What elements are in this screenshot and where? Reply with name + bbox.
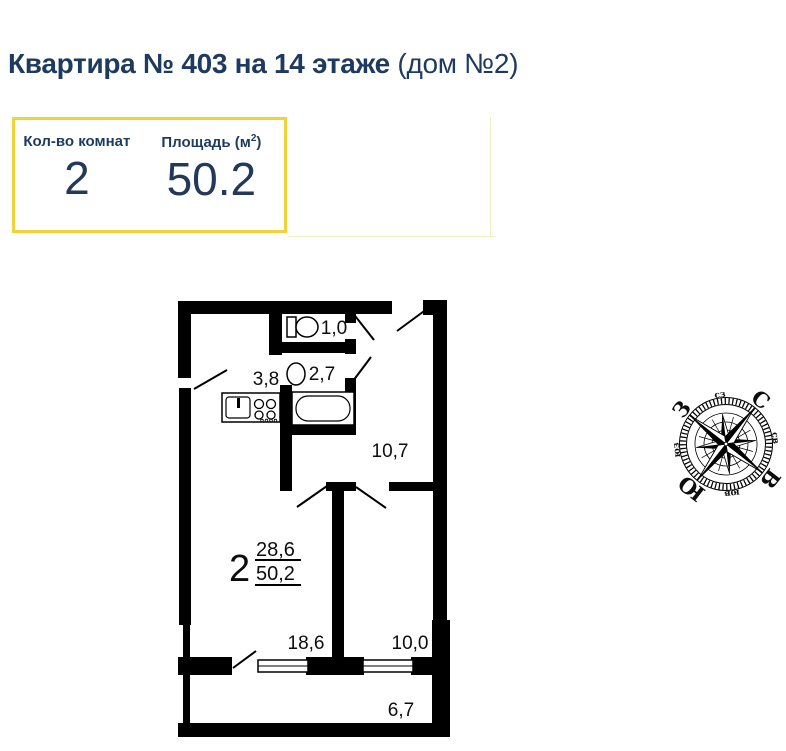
- room-area-balcony: 6,7: [388, 700, 414, 721]
- room-area-corridor: 3,8: [253, 369, 279, 390]
- summary-rooms: 2: [229, 548, 250, 590]
- rooms-header: Кол-во комнат: [15, 133, 139, 150]
- compass-label-northwest: сз: [714, 390, 727, 401]
- compass-label-north: С: [747, 384, 776, 414]
- page-title-main: Квартира № 403 на 14 этаже: [8, 48, 390, 79]
- compass-rotated-group: С В Ю З св юв юз сз: [656, 378, 786, 510]
- faint-vertical-rule: [490, 117, 491, 236]
- room-area-bathroom: 2,7: [309, 364, 335, 385]
- faint-horizontal-rule: [288, 236, 496, 237]
- washbasin-icon: [287, 363, 305, 385]
- apartment-info-box: Кол-во комнат 2 Площадь (м2) 50.2: [12, 117, 287, 233]
- apartment-summary-label: 2 28,6 50,2: [229, 539, 301, 590]
- summary-living-area: 28,6: [256, 539, 295, 561]
- compass-label-west: З: [667, 396, 696, 423]
- apartment-page: Квартира № 403 на 14 этаже (дом №2) Кол-…: [0, 0, 786, 751]
- page-title: Квартира № 403 на 14 этаже (дом №2): [8, 48, 518, 80]
- area-column: Площадь (м2) 50.2: [139, 120, 284, 230]
- kitchen-sink-stove-icon: [222, 393, 280, 422]
- compass-label-southeast: юв: [724, 487, 741, 499]
- compass-label-southwest: юз: [671, 442, 683, 458]
- page-title-house: (дом №2): [397, 48, 518, 79]
- summary-total-area: 50,2: [256, 563, 295, 585]
- room-area-bedroom: 10,0: [392, 633, 429, 654]
- compass-label-northeast: св: [769, 432, 780, 445]
- rooms-column: Кол-во комнат 2: [15, 120, 139, 230]
- compass-label-south: Ю: [673, 470, 710, 506]
- rooms-value: 2: [15, 153, 139, 204]
- compass-label-east: В: [755, 464, 786, 493]
- area-header: Площадь (м2): [139, 133, 284, 151]
- compass-rose: С В Ю З св юв юз сз: [656, 378, 786, 510]
- area-value: 50.2: [139, 154, 284, 205]
- room-area-hall: 10,7: [372, 441, 409, 462]
- bathtub-icon: [292, 392, 354, 425]
- floor-plan: 1,0 2,7 3,8 10,7 18,6 10,0 6,7 2 28,6 50…: [170, 295, 460, 743]
- room-area-living: 18,6: [288, 633, 325, 654]
- area-header-text: Площадь (м: [161, 134, 250, 151]
- toilet-icon: [287, 317, 318, 337]
- room-area-wc: 1,0: [321, 318, 347, 339]
- area-header-close: ): [256, 134, 261, 151]
